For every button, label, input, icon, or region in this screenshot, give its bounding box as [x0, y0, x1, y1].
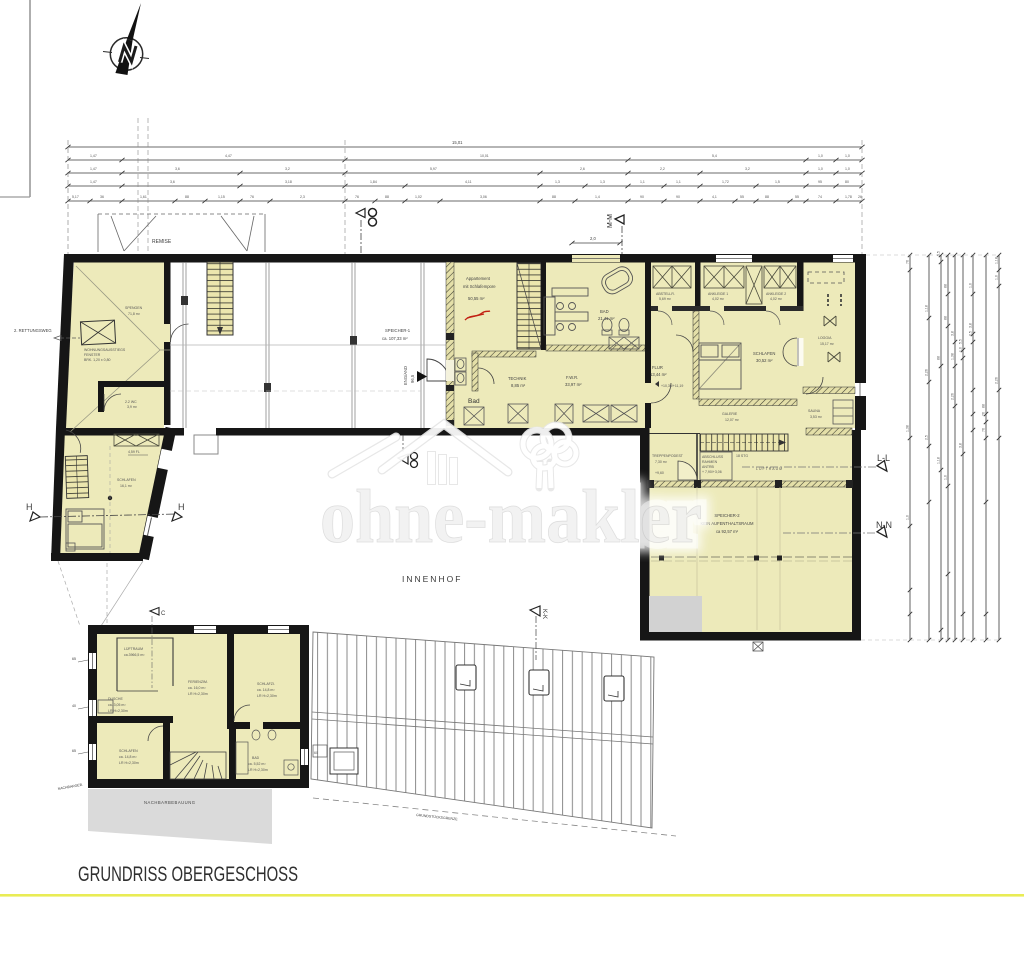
svg-text:ca.3966,5 m²: ca.3966,5 m²: [124, 653, 145, 657]
svg-text:40: 40: [72, 704, 76, 708]
svg-text:76: 76: [355, 195, 359, 199]
svg-text:50,55 m²: 50,55 m²: [468, 296, 485, 301]
svg-text:2,0: 2,0: [590, 236, 596, 241]
svg-text:4,02 m²: 4,02 m²: [770, 297, 783, 301]
svg-text:LR H=2,30m: LR H=2,30m: [248, 768, 268, 772]
svg-text:65: 65: [72, 657, 76, 661]
svg-text:1,0: 1,0: [818, 154, 823, 158]
svg-text:3,2: 3,2: [745, 167, 750, 171]
svg-text:1,0: 1,0: [995, 275, 999, 280]
svg-text:3,53 m²: 3,53 m²: [810, 415, 823, 419]
svg-text:LR H=2,30m: LR H=2,30m: [108, 709, 128, 713]
svg-text:1,5: 1,5: [775, 180, 780, 184]
svg-text:mit Schlafempore: mit Schlafempore: [463, 284, 496, 289]
svg-text:3,06: 3,06: [480, 195, 487, 199]
svg-text:1,84: 1,84: [370, 180, 377, 184]
svg-text:1,18: 1,18: [995, 257, 999, 264]
svg-text:H: H: [26, 502, 33, 512]
svg-text:ca. 14,8 m²: ca. 14,8 m²: [257, 688, 275, 692]
svg-text:10,01: 10,01: [480, 154, 489, 158]
svg-text:H: H: [178, 502, 185, 512]
svg-text:1,72: 1,72: [722, 180, 729, 184]
svg-text:N-N: N-N: [876, 520, 892, 530]
svg-text:1,0: 1,0: [845, 154, 850, 158]
svg-text:ENG/AND: ENG/AND: [403, 366, 408, 385]
svg-text:2,6: 2,6: [580, 167, 585, 171]
svg-text:2,5: 2,5: [969, 331, 973, 336]
svg-text:5,4: 5,4: [712, 154, 717, 158]
svg-text:88: 88: [385, 195, 389, 199]
svg-text:88: 88: [552, 195, 556, 199]
svg-text:2,26: 2,26: [995, 377, 999, 384]
svg-text:FLUR: FLUR: [652, 365, 663, 370]
svg-text:1,4: 1,4: [595, 195, 600, 199]
svg-text:BRK. 1,20 x 0,80: BRK. 1,20 x 0,80: [84, 358, 111, 362]
svg-text:1,0: 1,0: [959, 347, 963, 352]
svg-text:ANTRB: ANTRB: [702, 465, 715, 469]
svg-text:1,0: 1,0: [845, 167, 850, 171]
svg-text:5,97: 5,97: [430, 167, 437, 171]
svg-text:1,78: 1,78: [845, 195, 852, 199]
svg-text:TREPPENPODEST: TREPPENPODEST: [652, 454, 684, 458]
svg-text:30,52 m²: 30,52 m²: [756, 358, 773, 363]
svg-text:90: 90: [676, 195, 680, 199]
svg-text:RAHMEN: RAHMEN: [702, 460, 718, 464]
svg-text:INNENHOF: INNENHOF: [402, 574, 462, 584]
svg-text:90: 90: [640, 195, 644, 199]
svg-text:88: 88: [937, 356, 941, 360]
svg-text:5,5: 5,5: [959, 339, 963, 344]
svg-text:55: 55: [740, 195, 744, 199]
svg-text:SPENGEN: SPENGEN: [125, 306, 143, 310]
svg-text:65: 65: [72, 749, 76, 753]
svg-text:13,44 m²: 13,44 m²: [650, 372, 667, 377]
svg-text:4,59 FL: 4,59 FL: [128, 450, 140, 454]
svg-text:SCHLAFEN: SCHLAFEN: [117, 478, 136, 482]
svg-text:4,47: 4,47: [225, 154, 232, 158]
svg-text:ABSTELLR.: ABSTELLR.: [656, 292, 675, 296]
svg-text:FERIENZIM.: FERIENZIM.: [188, 680, 208, 684]
svg-text:ca 92,57 m²: ca 92,57 m²: [716, 529, 739, 534]
svg-text:1,02: 1,02: [415, 195, 422, 199]
svg-text:LÜFTRAUM: LÜFTRAUM: [124, 647, 143, 651]
svg-text:2.2 WC: 2.2 WC: [125, 400, 137, 404]
svg-text:1,18: 1,18: [937, 457, 941, 464]
svg-text:3,6: 3,6: [175, 167, 180, 171]
svg-text:ohne-makler: ohne-makler: [320, 475, 702, 559]
svg-text:LR H=2,30m: LR H=2,30m: [119, 761, 139, 765]
svg-text:88: 88: [185, 195, 189, 199]
svg-text:GALERIE: GALERIE: [722, 412, 738, 416]
svg-text:74: 74: [818, 195, 822, 199]
svg-text:8,85 m²: 8,85 m²: [511, 383, 526, 388]
svg-text:ABSCHLUSS: ABSCHLUSS: [702, 455, 724, 459]
svg-text:1,0: 1,0: [818, 167, 823, 171]
svg-text:71,8 m²: 71,8 m²: [128, 312, 141, 316]
svg-text:2. RETTUNGSWEG: 2. RETTUNGSWEG: [14, 328, 52, 333]
svg-text:1,3: 1,3: [555, 180, 560, 184]
svg-text:76: 76: [982, 428, 986, 432]
svg-text:REMISE: REMISE: [152, 239, 172, 245]
svg-text:3,6: 3,6: [170, 180, 175, 184]
svg-text:1,47: 1,47: [90, 167, 97, 171]
svg-text:88: 88: [944, 316, 948, 320]
svg-text:ANKLEIDE 1: ANKLEIDE 1: [708, 292, 728, 296]
svg-text:4,02 m²: 4,02 m²: [712, 297, 725, 301]
svg-text:C: C: [161, 611, 166, 617]
svg-text:3,2: 3,2: [285, 167, 290, 171]
svg-text:1,47: 1,47: [90, 154, 97, 158]
svg-text:2,26: 2,26: [951, 393, 955, 400]
svg-text:SCHLAFZI.: SCHLAFZI.: [257, 682, 275, 686]
svg-text:ca. 5,52 m²: ca. 5,52 m²: [248, 762, 266, 766]
svg-text:FENSTER: FENSTER: [84, 353, 101, 357]
svg-text:3,8: 3,8: [951, 331, 955, 336]
svg-text:SAUNA: SAUNA: [808, 409, 821, 413]
svg-text:16,1 m²: 16,1 m²: [120, 484, 133, 488]
svg-text:GRUNDRISS OBERGESCHOSS: GRUNDRISS OBERGESCHOSS: [78, 863, 298, 886]
svg-text:LUFTRAUM: LUFTRAUM: [756, 467, 783, 471]
svg-text:ANKLEIDE 2: ANKLEIDE 2: [766, 292, 786, 296]
svg-text:1,38: 1,38: [951, 353, 955, 360]
svg-text:80: 80: [845, 180, 849, 184]
svg-text:LR H=2,30m: LR H=2,30m: [257, 694, 277, 698]
svg-text:55: 55: [795, 195, 799, 199]
svg-text:5,69 m²: 5,69 m²: [659, 297, 672, 301]
svg-text:F.W.R.: F.W.R.: [566, 375, 578, 380]
svg-text:ca. 3,05 m²: ca. 3,05 m²: [108, 703, 126, 707]
svg-text:K-K: K-K: [541, 609, 547, 619]
svg-text:3,9 m²: 3,9 m²: [127, 405, 138, 409]
svg-text:1,61: 1,61: [140, 195, 147, 199]
svg-text:15,01: 15,01: [452, 140, 463, 145]
svg-text:12,07 m²: 12,07 m²: [725, 418, 740, 422]
svg-text:76: 76: [250, 195, 254, 199]
svg-text:33,97 m²: 33,97 m²: [565, 382, 582, 387]
svg-text:1,1: 1,1: [676, 180, 681, 184]
svg-text:M-M: M-M: [607, 214, 614, 228]
svg-text:4,1: 4,1: [712, 195, 717, 199]
svg-text:1,0: 1,0: [906, 515, 910, 520]
svg-text:1,47: 1,47: [90, 180, 97, 184]
svg-text:SCHLAFEN: SCHLAFEN: [753, 351, 775, 356]
svg-text:NACHBARBEBAUUNG: NACHBARBEBAUUNG: [144, 800, 195, 805]
svg-text:1,38: 1,38: [906, 425, 910, 432]
svg-text:WOHNUNGSAUSSTIEGS: WOHNUNGSAUSSTIEGS: [84, 348, 126, 352]
svg-text:96,5: 96,5: [410, 374, 415, 383]
svg-text:88: 88: [765, 195, 769, 199]
svg-text:1,0: 1,0: [969, 283, 973, 288]
svg-text:26: 26: [858, 195, 862, 199]
svg-text:4,11: 4,11: [465, 180, 472, 184]
svg-text:2,26: 2,26: [925, 369, 929, 376]
svg-text:DUSCHE: DUSCHE: [108, 697, 123, 701]
svg-text:1,15: 1,15: [218, 195, 225, 199]
svg-text:1,3: 1,3: [600, 180, 605, 184]
svg-text:TECHNIK: TECHNIK: [508, 376, 527, 381]
svg-text:88: 88: [944, 284, 948, 288]
svg-text:BAD: BAD: [600, 309, 609, 314]
svg-text:Appartement: Appartement: [466, 276, 491, 281]
svg-text:ca. 16,0 m²: ca. 16,0 m²: [188, 686, 206, 690]
svg-text:1,0: 1,0: [944, 475, 948, 480]
svg-text:15,17 m²: 15,17 m²: [820, 342, 835, 346]
svg-text:2,5: 2,5: [925, 435, 929, 440]
svg-text:18 STG: 18 STG: [736, 454, 748, 458]
svg-text:SPEICHER-1: SPEICHER-1: [385, 328, 411, 333]
svg-text:2,3: 2,3: [300, 195, 305, 199]
svg-text:60: 60: [314, 751, 318, 755]
svg-text:36: 36: [100, 195, 104, 199]
svg-text:KEIN AUFENTHALTSRAUM: KEIN AUFENTHALTSRAUM: [701, 521, 754, 526]
svg-text:3,18: 3,18: [285, 180, 292, 184]
svg-text:5,5: 5,5: [937, 251, 941, 256]
svg-text:76: 76: [982, 412, 986, 416]
svg-text:SPEICHER-2: SPEICHER-2: [714, 513, 740, 518]
svg-text:76: 76: [906, 260, 910, 264]
svg-text:+ 7,90/+3,06: + 7,90/+3,06: [702, 470, 722, 474]
svg-text:7,30 m²: 7,30 m²: [655, 460, 668, 464]
svg-text:+10,30/+11,19: +10,30/+11,19: [661, 384, 683, 388]
svg-text:3,8: 3,8: [959, 443, 963, 448]
svg-text:5,17: 5,17: [72, 195, 79, 199]
svg-text:SCHLAFEN: SCHLAFEN: [119, 749, 138, 753]
svg-text:BAD: BAD: [252, 756, 260, 760]
svg-text:88: 88: [982, 404, 986, 408]
svg-text:LR H=2,30m: LR H=2,30m: [188, 692, 208, 696]
svg-text:3,8: 3,8: [969, 323, 973, 328]
svg-text:ca. 14,8 m²: ca. 14,8 m²: [119, 755, 137, 759]
svg-text:95: 95: [818, 180, 822, 184]
svg-text:1,18: 1,18: [925, 305, 929, 312]
svg-text:Bad: Bad: [468, 398, 480, 405]
svg-text:ca. 107,33 m²: ca. 107,33 m²: [382, 336, 408, 341]
svg-text:1,1: 1,1: [640, 180, 645, 184]
svg-text:2,2: 2,2: [660, 167, 665, 171]
svg-text:LOGGIA: LOGGIA: [818, 336, 832, 340]
